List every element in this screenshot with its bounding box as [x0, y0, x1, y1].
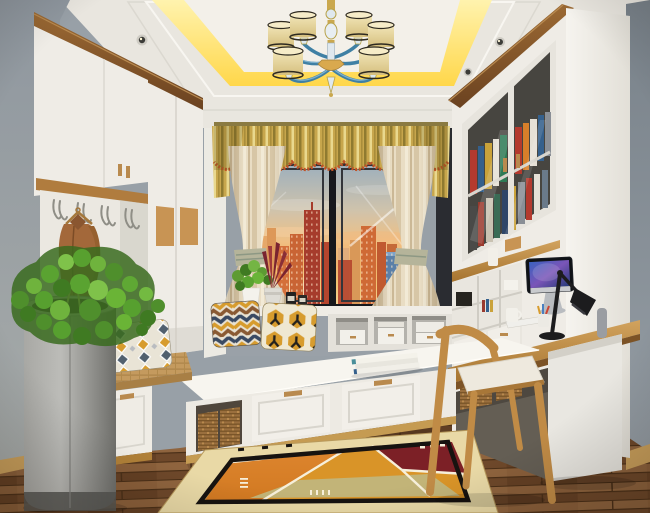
room-scene — [0, 0, 650, 513]
room-photo — [0, 0, 650, 513]
vignette-overlay — [0, 0, 650, 513]
